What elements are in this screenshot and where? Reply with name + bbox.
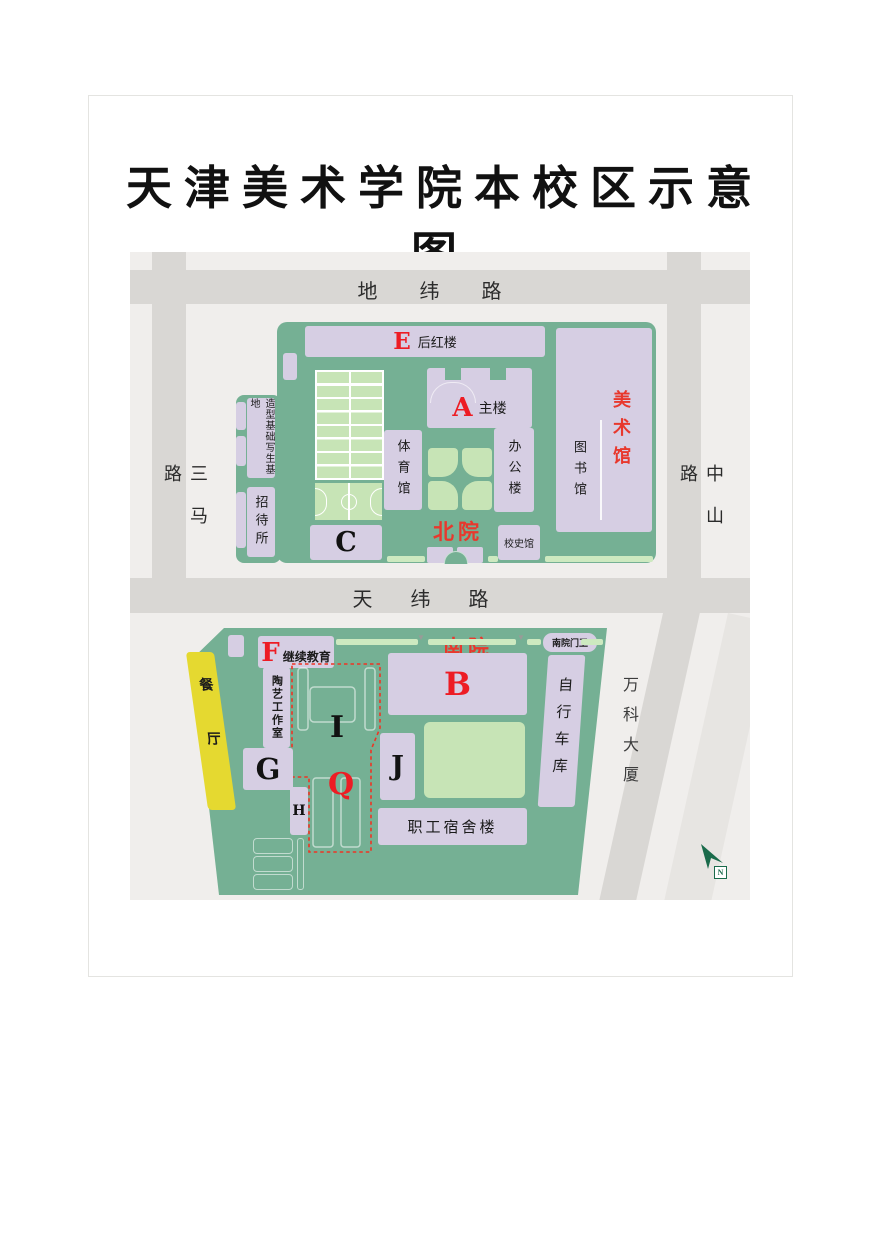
tennis-court-cell <box>350 425 384 452</box>
sidewalk-strip <box>581 639 603 645</box>
annex-building <box>236 436 246 466</box>
building-history-museum-label: 校史馆 <box>504 535 534 550</box>
building-rear-red-name: 后红楼 <box>418 332 457 351</box>
basketball-court <box>315 483 382 520</box>
annex-building <box>228 635 244 657</box>
building-rear-red-letter: E <box>393 328 411 355</box>
tennis-court-cell <box>316 452 350 479</box>
building-g: G <box>243 748 293 790</box>
sidewalk-strip <box>428 639 516 645</box>
building-j-letter: J <box>391 751 404 782</box>
wanke-tower-label: 万科大厦 <box>616 676 640 806</box>
diwei-road-label: 地纬路 <box>290 275 590 304</box>
building-main-label: A 主楼 <box>427 394 532 422</box>
campus-map: 地纬路 天纬路 三马路 中山路 万科大厦 E 后红楼 美术馆 图书馆 A 主楼 … <box>130 252 750 900</box>
building-guest-house: 招待所 <box>247 487 275 557</box>
building-pottery-studio-label: 陶艺工作室 <box>269 675 285 740</box>
annex-building <box>283 353 297 380</box>
court-left-arc <box>315 488 327 516</box>
outlined-structure <box>298 668 308 730</box>
building-staff-dorm-label: 职工宿舍楼 <box>407 816 497 837</box>
building-guest-house-label: 招待所 <box>252 495 271 549</box>
sidewalk-strip <box>527 639 541 645</box>
tennis-court-cell <box>316 425 350 452</box>
building-c: C <box>310 525 382 560</box>
art-museum-label: 美术馆 <box>608 390 634 490</box>
library-label: 图书馆 <box>570 440 589 516</box>
tianwei-road-label: 天纬路 <box>280 583 580 612</box>
sidewalk-strip <box>488 556 498 562</box>
gate-arrow-icon: ▼ <box>517 633 525 642</box>
tennis-court-cell <box>350 398 384 425</box>
building-staff-dorm: 职工宿舍楼 <box>378 808 527 845</box>
building-f-letter: F <box>261 642 279 665</box>
sanma-road-label: 三马路 <box>159 464 211 584</box>
court-right-arc <box>370 488 382 516</box>
parking-divider <box>297 838 304 890</box>
tennis-courts <box>315 370 384 480</box>
tennis-court-cell <box>316 398 350 425</box>
building-sketch-base: 造型基础写生基地 <box>247 398 275 478</box>
building-main-notch-right <box>490 368 506 380</box>
building-gym: 体育馆 <box>384 430 422 510</box>
compass-n-label: N <box>714 866 727 879</box>
building-j: J <box>380 733 415 800</box>
tennis-court-cell <box>350 452 384 479</box>
campus-map-page: 天津美术学院本校区示意图 地纬路 天纬路 三马路 中山路 万科大厦 E 后红楼 … <box>0 0 880 1244</box>
parking-space <box>253 838 293 854</box>
outlined-structure <box>365 668 375 730</box>
court-center-circle <box>341 494 357 510</box>
building-main-name: 主楼 <box>479 398 507 418</box>
north-campus-label: 北院 <box>428 516 488 546</box>
courtyard-quadrant <box>428 481 458 510</box>
building-c-letter: C <box>335 527 357 558</box>
annex-building <box>236 402 246 430</box>
building-b-letter: B <box>444 665 471 703</box>
building-sketch-base-label: 造型基础写生基地 <box>246 398 276 478</box>
tennis-court-cell <box>350 371 384 398</box>
building-main-notch-left <box>445 368 461 380</box>
art-museum-divider <box>600 420 602 520</box>
tennis-court-cell <box>316 371 350 398</box>
building-gym-label: 体育馆 <box>394 439 413 502</box>
building-office-label: 办公楼 <box>505 439 524 502</box>
building-h: H <box>290 787 308 835</box>
parking-space <box>253 874 293 890</box>
zone-i-letter: I <box>330 710 344 745</box>
sidewalk-strip <box>545 556 653 562</box>
building-g-letter: G <box>256 752 281 786</box>
building-h-letter: H <box>292 803 305 819</box>
parking-space <box>253 856 293 872</box>
building-main-letter: A <box>452 393 472 423</box>
gate-arrow-icon: ▼ <box>417 633 425 642</box>
sidewalk-strip <box>336 639 418 645</box>
courtyard-quadrant <box>462 481 492 510</box>
building-history-museum: 校史馆 <box>498 525 540 560</box>
annex-building <box>236 492 246 548</box>
building-rear-red: E 后红楼 <box>305 326 545 357</box>
building-bike-garage-label: 自行车库 <box>547 677 576 785</box>
building-office: 办公楼 <box>494 428 534 512</box>
zone-q-letter: Q <box>328 767 354 802</box>
zhongshan-road-label: 中山路 <box>675 464 727 584</box>
courtyard-quadrant <box>462 448 492 477</box>
sidewalk-strip <box>387 556 425 562</box>
south-field <box>424 722 525 798</box>
